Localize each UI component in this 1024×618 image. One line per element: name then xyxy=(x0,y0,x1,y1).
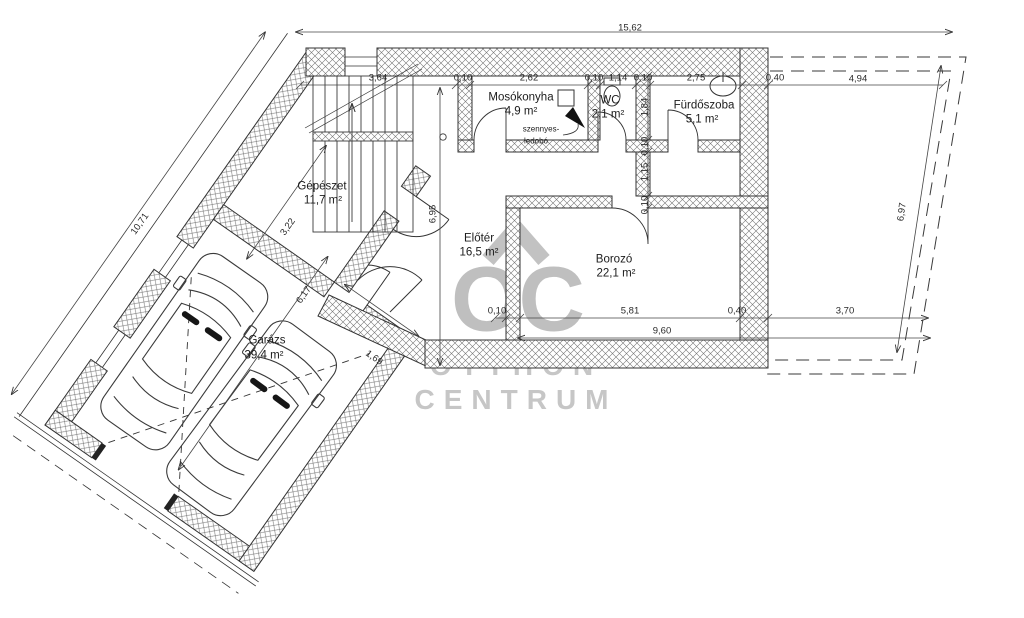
dim-top-3: 0,10 xyxy=(585,73,604,84)
dim-top-2: 2,62 xyxy=(520,73,539,84)
terrace-dashed-outline xyxy=(766,57,966,374)
room-name-wc: WC xyxy=(600,95,619,108)
dim-bottom-2: 0,40 xyxy=(728,306,747,317)
room-area-wc: 2,1 m² xyxy=(592,109,625,122)
room-name-eloter: Előtér xyxy=(464,233,494,246)
room-area-eloter: 16,5 m² xyxy=(460,247,499,260)
chute-annotation-line2: ledobó xyxy=(524,138,548,147)
dim-bottom-0: 0,10 xyxy=(488,306,507,317)
dim-top-8: 4,94 xyxy=(849,74,868,85)
room-area-borozo: 22,1 m² xyxy=(597,268,636,281)
laundry-chute-icon xyxy=(558,90,585,135)
dim-bottom-3: 3,70 xyxy=(836,306,855,317)
room-name-garazs: Garázs xyxy=(248,335,285,348)
dim-top-1: 0,10 xyxy=(454,73,473,84)
dim-vchain-3: 0,10 xyxy=(640,196,651,215)
dim-bottom-1: 5,81 xyxy=(621,306,640,317)
room-area-furdoszoba: 5,1 m² xyxy=(686,114,719,127)
dim-overall-top: 15,62 xyxy=(618,23,642,34)
dim-top-4: 1,14 xyxy=(609,73,628,84)
dim-vchain-1: 0,10 xyxy=(640,137,651,156)
dim-top-5: 0,10 xyxy=(634,73,653,84)
floor-plan-page: OC OTTHON CENTRUM xyxy=(0,0,1024,618)
top-wall-window xyxy=(345,57,377,66)
room-name-gepeszet: Gépészet xyxy=(297,181,346,194)
dim-top-6: 2,75 xyxy=(687,73,706,84)
room-area-mosokonyha: 4,9 m² xyxy=(505,106,538,119)
room-area-gepeszet: 11,7 m² xyxy=(304,195,342,208)
room-area-garazs: 39,4 m² xyxy=(245,350,284,363)
dim-eloter-height: 6,95 xyxy=(428,205,439,224)
dim-top-0: 3,64 xyxy=(369,73,388,84)
dim-vchain-2: 1,15 xyxy=(640,163,651,182)
dim-vchain-0: 1,84 xyxy=(640,98,651,117)
chute-annotation-line1: szennyes- xyxy=(523,126,559,135)
garage-wing xyxy=(0,22,526,599)
dim-bottom-total: 9,60 xyxy=(653,326,672,337)
room-name-borozo: Borozó xyxy=(596,254,632,267)
room-name-mosokonyha: Mosókonyha xyxy=(488,92,553,105)
dim-top-7: 0,40 xyxy=(766,73,785,84)
room-name-furdoszoba: Fürdőszoba xyxy=(674,100,735,113)
